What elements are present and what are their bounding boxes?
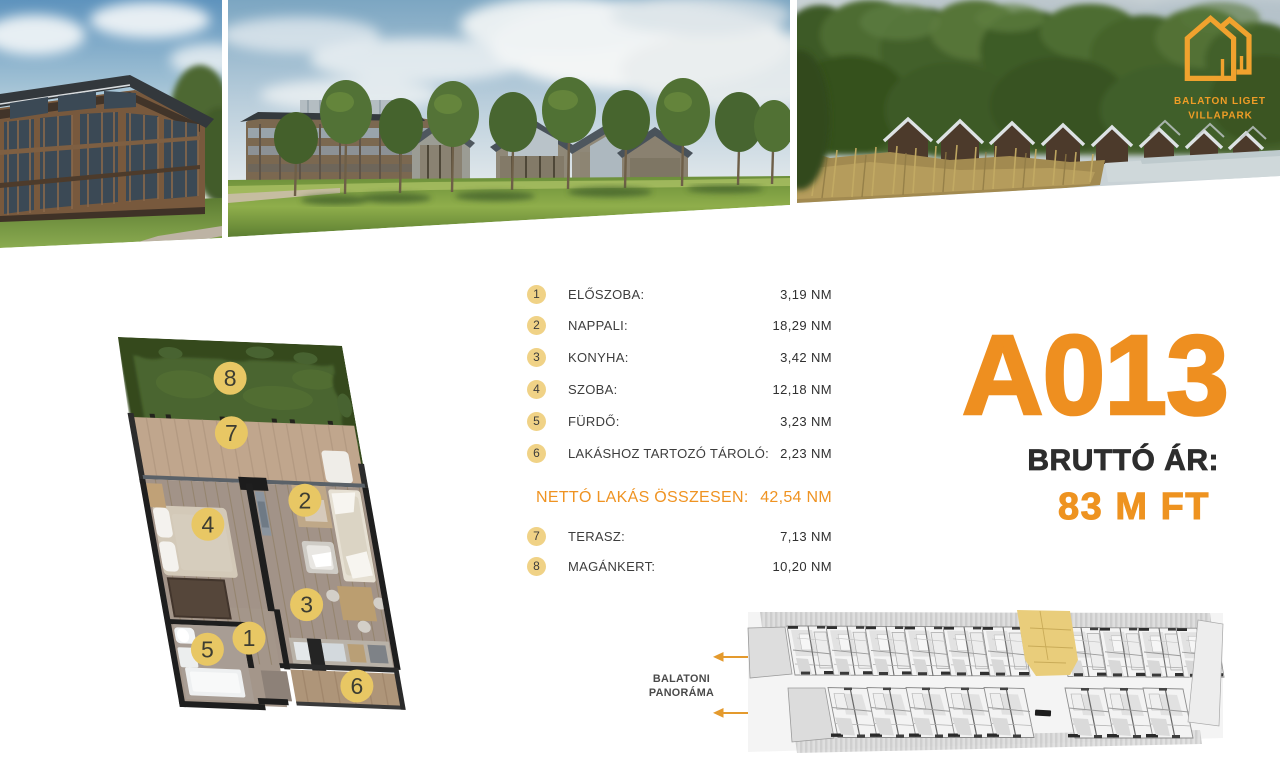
- svg-text:7: 7: [225, 420, 238, 446]
- svg-text:6: 6: [351, 673, 364, 699]
- svg-text:4: 4: [202, 511, 215, 537]
- svg-text:3: 3: [300, 592, 313, 618]
- svg-text:VILLAPARK: VILLAPARK: [1188, 110, 1253, 121]
- svg-text:BALATON LIGET: BALATON LIGET: [1174, 96, 1266, 107]
- svg-text:2: 2: [299, 487, 312, 513]
- svg-text:5: 5: [201, 636, 214, 662]
- svg-text:1: 1: [243, 625, 256, 651]
- svg-text:8: 8: [224, 365, 237, 391]
